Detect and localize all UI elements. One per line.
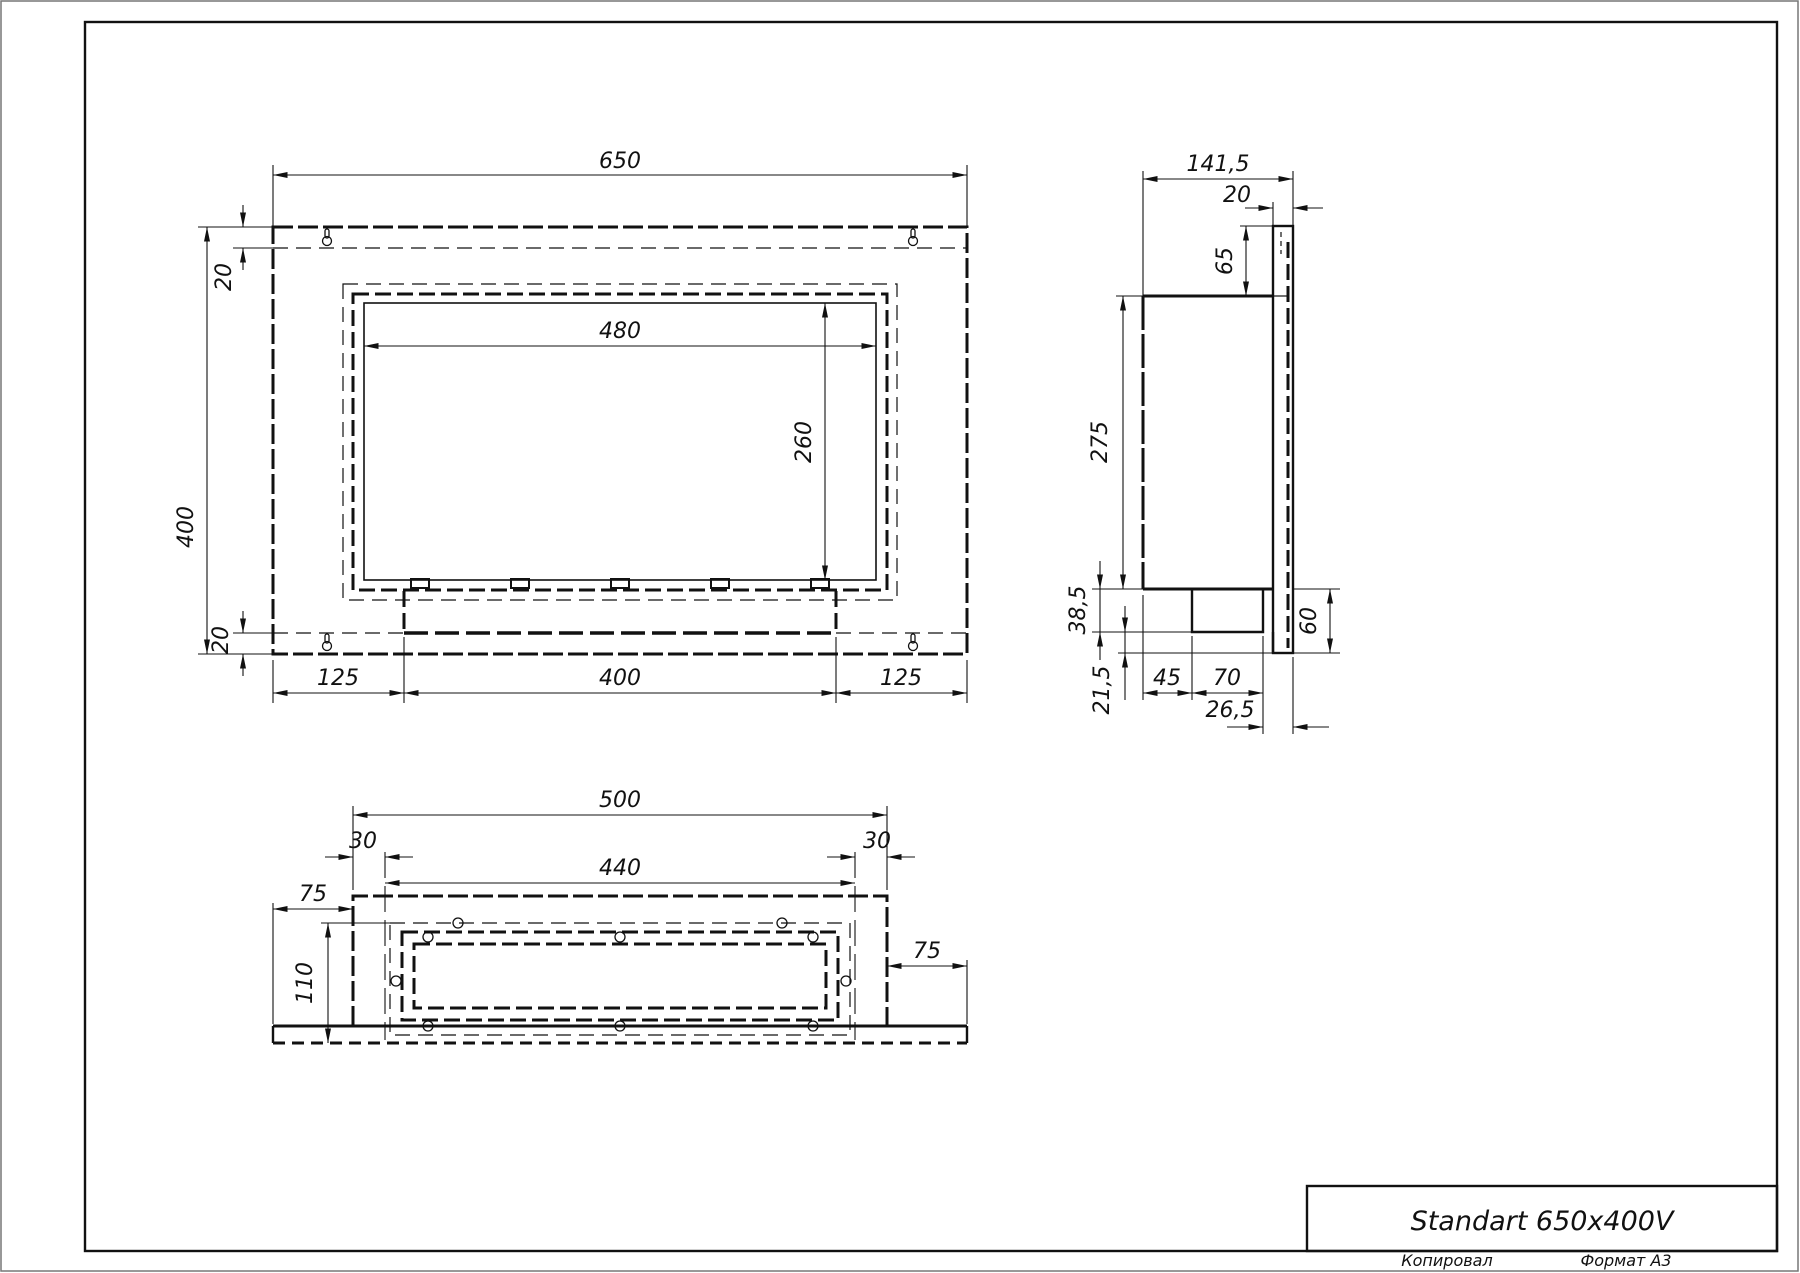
dim-text-260: 260 bbox=[792, 421, 817, 463]
dim-text-20-top: 20 bbox=[212, 263, 237, 291]
dim-text-141-5: 141,5 bbox=[1187, 152, 1250, 177]
format-label: Формат А3 bbox=[1580, 1251, 1671, 1270]
drawing-title: Standart 650x400V bbox=[1411, 1206, 1676, 1237]
dim-text-125-right: 125 bbox=[880, 666, 922, 691]
dim-text-440: 440 bbox=[599, 856, 641, 881]
dim-text-30-left: 30 bbox=[349, 829, 377, 854]
copied-label: Копировал bbox=[1401, 1251, 1492, 1270]
technical-drawing-sheet: 650 400 20 20 480 260 125 400 125 bbox=[0, 0, 1800, 1273]
dim-text-20-flange: 20 bbox=[1223, 183, 1251, 208]
dim-text-75-left: 75 bbox=[299, 882, 327, 907]
dim-text-400-slot: 400 bbox=[599, 666, 641, 691]
dim-text-275: 275 bbox=[1088, 421, 1113, 463]
dim-text-500: 500 bbox=[599, 788, 641, 813]
dim-text-70: 70 bbox=[1213, 666, 1241, 691]
dim-text-65: 65 bbox=[1213, 247, 1238, 275]
sheet-edge bbox=[1, 1, 1798, 1271]
dim-text-20-bottom: 20 bbox=[209, 626, 234, 654]
dim-text-45: 45 bbox=[1153, 666, 1181, 691]
dim-text-125-left: 125 bbox=[317, 666, 359, 691]
dim-text-75-right: 75 bbox=[913, 939, 941, 964]
dim-text-650: 650 bbox=[599, 149, 641, 174]
dim-text-400-height: 400 bbox=[174, 506, 199, 548]
dim-text-480: 480 bbox=[599, 319, 641, 344]
dim-text-60: 60 bbox=[1297, 607, 1322, 635]
dim-text-26-5: 26,5 bbox=[1206, 698, 1255, 723]
dim-text-110: 110 bbox=[293, 962, 318, 1004]
dim-text-38-5: 38,5 bbox=[1066, 586, 1091, 635]
dim-text-21-5: 21,5 bbox=[1090, 666, 1115, 715]
dim-text-30-right: 30 bbox=[863, 829, 891, 854]
